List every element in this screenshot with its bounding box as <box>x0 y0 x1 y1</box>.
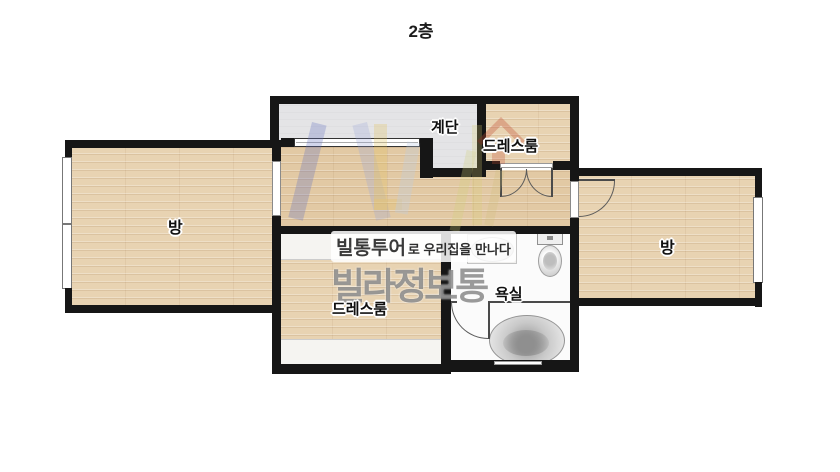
label-bathroom: 욕실 <box>495 283 523 304</box>
toilet-bowl-inner <box>543 252 557 270</box>
label-stairs: 계단 <box>431 116 459 137</box>
tagline-box: 빌통투어 로 우리집을 만나다 <box>331 231 516 262</box>
wall-dressroom-bottom <box>272 364 451 374</box>
wall-top-main <box>270 96 579 104</box>
wall-right-outer-top <box>755 168 762 198</box>
logo-l <box>374 124 387 210</box>
page-title: 2층 <box>391 17 451 42</box>
bath-door-panel <box>488 301 490 339</box>
tagline-bold: 빌통투어 <box>336 233 406 260</box>
window-icon-right <box>753 197 763 283</box>
wall-left-room-top <box>65 140 280 148</box>
opening-right-room <box>570 181 579 218</box>
window-left-divider <box>62 223 72 225</box>
tagline-rest: 로 우리집을 만나다 <box>408 239 511 258</box>
wall-mid-vertical-lower <box>272 216 281 374</box>
wall-right-room-bottom <box>570 298 762 306</box>
wall-top-dressroom-right <box>570 96 579 175</box>
wall-top-dressroom-bottom-right <box>553 161 571 170</box>
double-door-opening <box>500 163 553 168</box>
wall-bath-right <box>570 226 579 372</box>
floorplan-canvas: 빌라정보통 빌통투어 로 우리집을 만나다 2층 계단 드레스룸 방 방 드레스… <box>0 0 840 472</box>
label-left-room: 방 <box>168 214 183 238</box>
wall-hall-top-stub <box>281 138 294 147</box>
double-door-right-panel <box>551 168 553 197</box>
toilet-button <box>547 236 553 240</box>
opening-left-room <box>272 161 281 216</box>
wall-right-room-top <box>570 168 762 176</box>
label-right-room: 방 <box>660 234 675 258</box>
wall-left-outer-top <box>65 140 72 158</box>
bathtub-inner <box>503 330 549 356</box>
wall-mid-vertical-upper <box>272 140 281 161</box>
label-bottom-dressroom: 드레스룸 <box>332 298 387 319</box>
label-top-dressroom: 드레스룸 <box>483 135 538 156</box>
window-icon-bath-bottom <box>494 361 542 365</box>
wall-left-room-bottom <box>65 305 281 313</box>
